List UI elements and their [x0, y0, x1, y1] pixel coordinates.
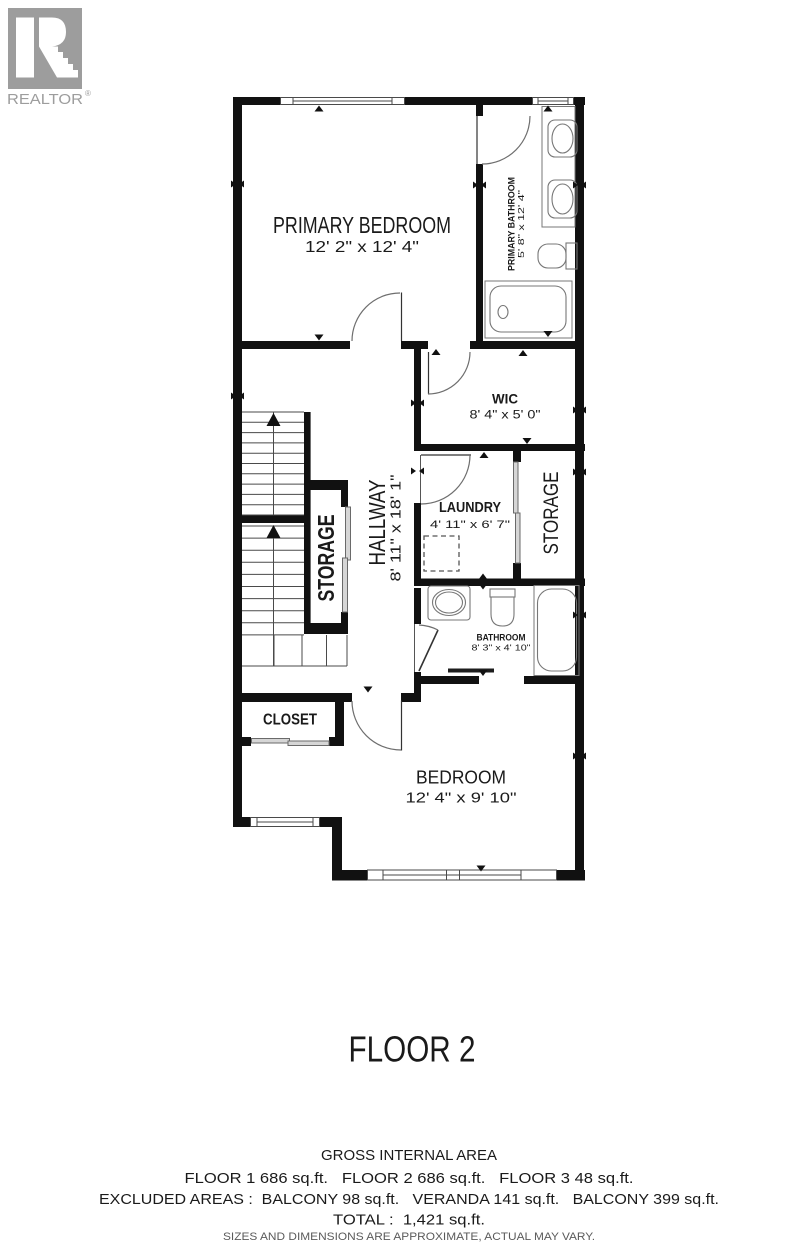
svg-text:STORAGE: STORAGE	[313, 515, 339, 602]
svg-text:EXCLUDED AREAS : BALCONY 98 s: EXCLUDED AREAS : BALCONY 98 sq.ft. VERAN…	[99, 1191, 719, 1208]
svg-text:8' 3" x 4' 10": 8' 3" x 4' 10"	[472, 644, 531, 653]
svg-text:FLOOR 1 686 sq.ft. FLOOR 2 6: FLOOR 1 686 sq.ft. FLOOR 2 686 sq.ft. FL…	[185, 1170, 634, 1187]
svg-text:HALLWAY: HALLWAY	[364, 480, 390, 566]
svg-text:12' 4" x 9' 10": 12' 4" x 9' 10"	[406, 790, 517, 807]
svg-text:12' 2" x 12' 4": 12' 2" x 12' 4"	[305, 239, 419, 256]
svg-text:LAUNDRY: LAUNDRY	[439, 499, 501, 516]
svg-text:®: ®	[85, 89, 91, 98]
svg-text:WIC: WIC	[492, 392, 518, 407]
svg-text:8' 11" x 18' 1": 8' 11" x 18' 1"	[388, 475, 405, 582]
svg-text:SIZES AND DIMENSIONS ARE APPRO: SIZES AND DIMENSIONS ARE APPROXIMATE, AC…	[223, 1231, 595, 1243]
svg-text:STORAGE: STORAGE	[540, 472, 563, 555]
svg-text:GROSS INTERNAL AREA: GROSS INTERNAL AREA	[321, 1147, 497, 1164]
svg-text:REALTOR: REALTOR	[7, 91, 83, 108]
svg-text:PRIMARY BEDROOM: PRIMARY BEDROOM	[273, 212, 451, 238]
svg-text:4' 11" x 6' 7": 4' 11" x 6' 7"	[430, 519, 510, 531]
svg-text:CLOSET: CLOSET	[263, 712, 317, 729]
svg-text:BEDROOM: BEDROOM	[416, 767, 506, 788]
svg-text:FLOOR 2: FLOOR 2	[349, 1029, 476, 1070]
svg-text:8' 4" x 5' 0": 8' 4" x 5' 0"	[470, 410, 541, 422]
svg-text:TOTAL : 1,421 sq.ft.: TOTAL : 1,421 sq.ft.	[333, 1212, 485, 1229]
svg-text:BATHROOM: BATHROOM	[477, 633, 526, 644]
svg-text:PRIMARY BATHROOM: PRIMARY BATHROOM	[507, 177, 518, 271]
svg-text:5' 8" x 12' 4": 5' 8" x 12' 4"	[517, 190, 526, 258]
